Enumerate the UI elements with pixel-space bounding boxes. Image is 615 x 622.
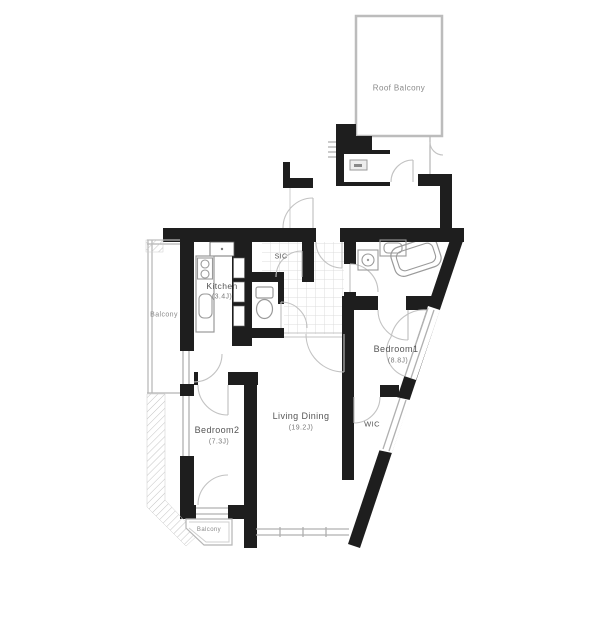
- living-balcony-opening: [180, 351, 194, 384]
- kitchen-size: (3.4J): [212, 294, 232, 301]
- closet-knob: [221, 248, 223, 250]
- diagonal-wall: [348, 234, 464, 548]
- floor-plan: Roof Balcony Balcony Kitchen (3.4J) SIC …: [0, 0, 615, 622]
- corridor-wall-right-stub: [440, 174, 452, 232]
- bedroom2-balcony-opening: [196, 505, 228, 519]
- living-dining-size: (19.2J): [289, 425, 314, 432]
- bedroom1-balcony-opening: [404, 306, 440, 380]
- bedroom1-door-arc: [378, 310, 408, 340]
- living-right-wall: [342, 296, 354, 480]
- bedroom1-french-door-arc2: [387, 337, 404, 376]
- top-wall-left: [163, 228, 316, 242]
- kitchen-label: Kitchen: [206, 281, 237, 291]
- wic-top-wall: [380, 385, 399, 397]
- sic-right-wall: [302, 242, 314, 282]
- toilet: [256, 287, 273, 319]
- roof-balcony-label: Roof Balcony: [373, 84, 425, 93]
- bedroom2-label: Bedroom2: [195, 425, 240, 435]
- living-door-arc: [306, 334, 344, 372]
- toilet-bottom-wall: [240, 328, 284, 338]
- roof-balcony-outline: [356, 16, 442, 136]
- balcony-hatch-top: [146, 240, 163, 252]
- entrance-opening: [316, 228, 340, 242]
- balcony-bottom-label: Balcony: [197, 527, 221, 533]
- corridor-wall-left-stub: [283, 162, 290, 188]
- washroom-wall-upper: [344, 242, 356, 264]
- terrace-door-arc: [430, 142, 443, 155]
- wic-window-opening: [378, 397, 410, 453]
- bedroom2-door-arc: [198, 385, 228, 415]
- kitchen-niche-1: [234, 258, 245, 278]
- sic-bottom-wall: [252, 272, 284, 282]
- kitchen-niche-3: [234, 306, 245, 326]
- wic-label: WIC: [364, 420, 380, 429]
- living-dining-label: Living Dining: [273, 411, 330, 421]
- floor-plan-canvas: [0, 0, 615, 622]
- bedroom1-label: Bedroom1: [374, 344, 419, 354]
- entrance-fixture: [354, 164, 362, 167]
- washer-pan: [358, 250, 378, 270]
- front-door-arc: [391, 160, 413, 182]
- bedroom2-right-wall: [244, 372, 257, 548]
- corridor-door-arc: [283, 198, 313, 228]
- balcony-left-label: Balcony: [150, 312, 178, 319]
- bedroom1-size: (8.8J): [388, 358, 408, 365]
- step-hatch-marks: [328, 142, 336, 157]
- bedroom2-balcony-door-arc: [198, 475, 228, 505]
- bedroom2-window-opening: [180, 396, 194, 456]
- bedroom2-size: (7.3J): [209, 439, 229, 446]
- sic-label: SIC: [275, 254, 288, 261]
- toilet-right-wall: [278, 282, 284, 304]
- washroom-door-arc: [350, 264, 378, 292]
